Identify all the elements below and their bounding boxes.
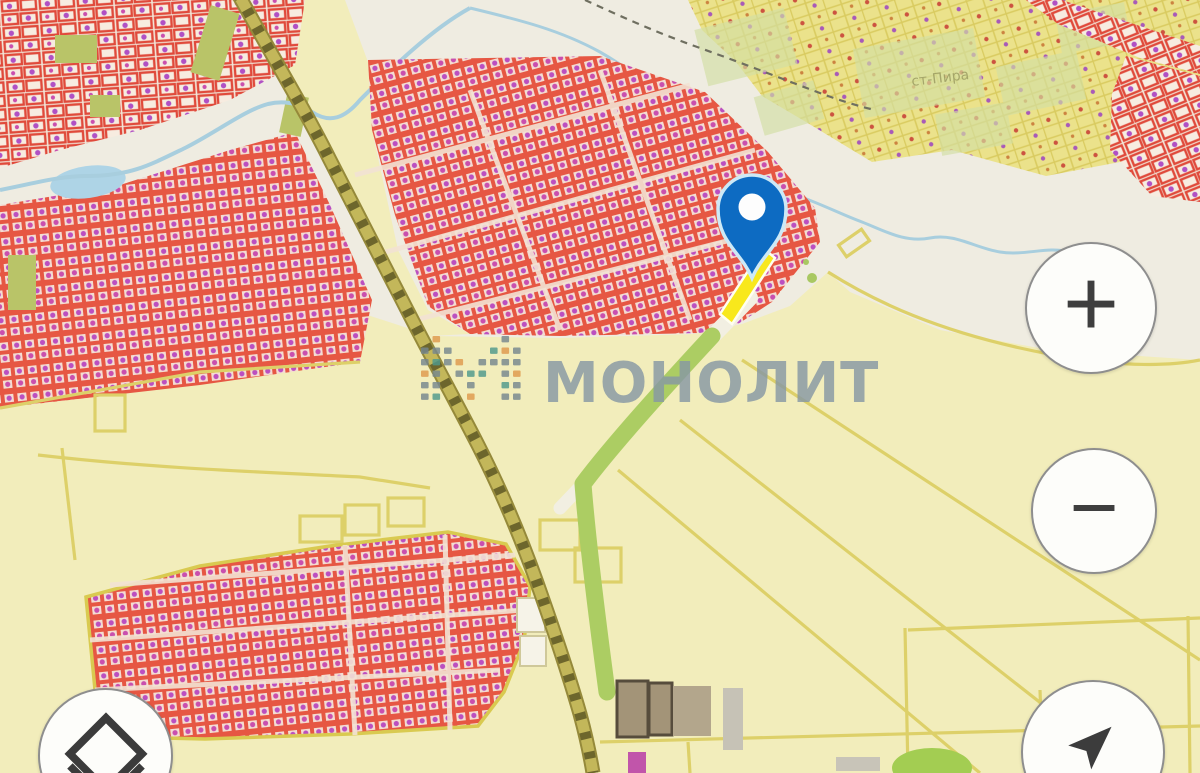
zoom-in-button[interactable]: +	[1025, 242, 1157, 374]
navigation-arrow-icon	[1047, 706, 1139, 773]
map-screen: ст-Пира	[0, 0, 1200, 773]
plus-icon: +	[1063, 256, 1119, 352]
green-dot	[807, 273, 817, 283]
layers-icon	[63, 711, 149, 773]
green-dot-small	[803, 259, 809, 265]
map-canvas[interactable]: ст-Пира	[0, 0, 1200, 773]
zoom-out-button[interactable]: −	[1031, 448, 1157, 574]
minus-icon: −	[1069, 465, 1118, 549]
